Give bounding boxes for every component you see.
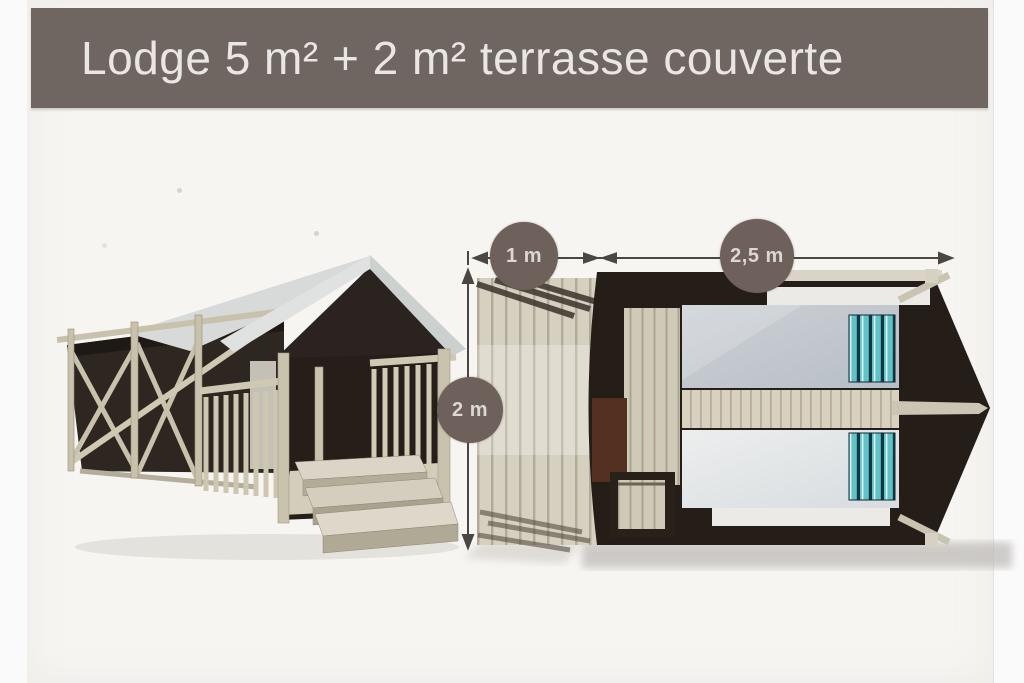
- dimension-label: 1 m: [506, 245, 542, 268]
- plan-shadow: [582, 542, 1012, 568]
- dimension-badge-overall-depth: 2 m: [437, 377, 503, 443]
- dimension-label: 2 m: [452, 399, 488, 422]
- interior-plank-strip: [624, 308, 680, 485]
- dimension-label: 2,5 m: [730, 245, 784, 268]
- storage-box: [610, 472, 675, 537]
- pillow: [849, 433, 895, 500]
- bottom-wall-opening: [712, 506, 890, 526]
- bed-bottom: [682, 430, 899, 508]
- pillow: [849, 315, 895, 382]
- plan-shadow: [464, 542, 582, 564]
- flyer-card: Lodge 5 m² + 2 m² terrasse couverte: [27, 0, 994, 683]
- title-banner: Lodge 5 m² + 2 m² terrasse couverte: [31, 8, 988, 108]
- lodge-3d-view: [52, 245, 492, 585]
- bed-top: [682, 305, 899, 388]
- dimension-badge-cabin-length: 2,5 m: [720, 219, 794, 293]
- interior-floor-patch: [592, 398, 627, 482]
- scan-speck: [314, 231, 319, 236]
- scan-speck: [177, 188, 182, 193]
- center-aisle: [682, 390, 899, 428]
- page-title: Lodge 5 m² + 2 m² terrasse couverte: [31, 31, 844, 85]
- dimension-badge-terrace-width: 1 m: [490, 222, 558, 290]
- scanned-flyer: Lodge 5 m² + 2 m² terrasse couverte: [0, 0, 1024, 683]
